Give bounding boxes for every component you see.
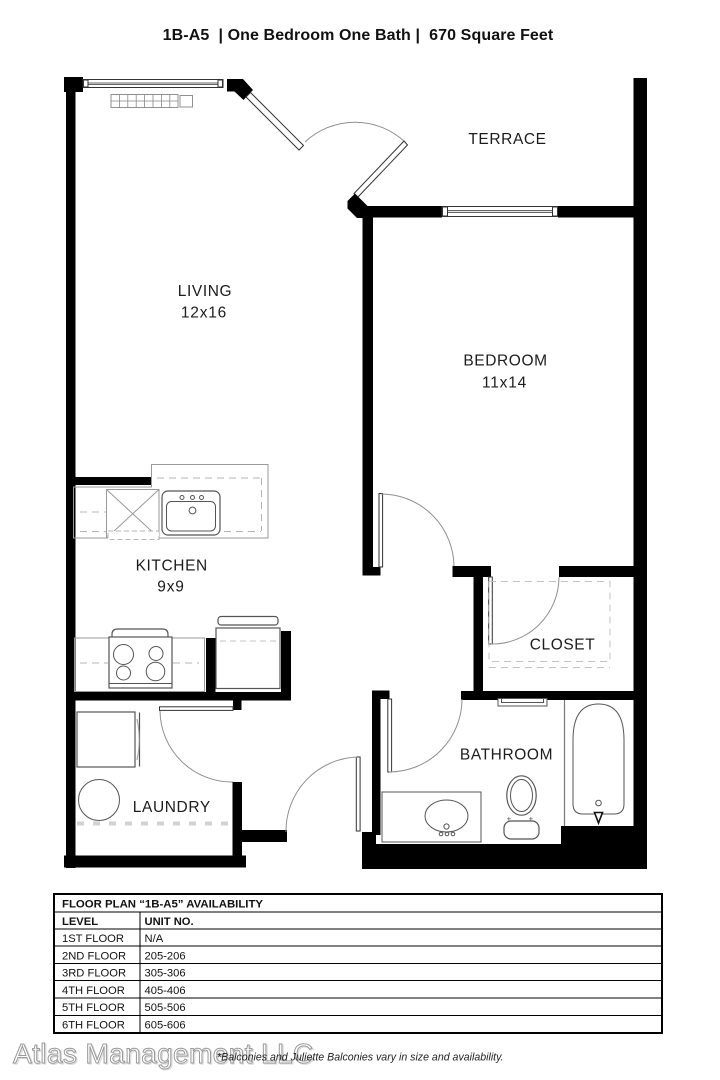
svg-text:305-306: 305-306: [145, 968, 186, 980]
svg-text:CLOSET: CLOSET: [530, 637, 596, 654]
svg-text:1B-A5 | One Bedroom One Bath: 1B-A5 | One Bedroom One Bath | 670 Squar…: [163, 27, 554, 44]
svg-text:9x9: 9x9: [157, 579, 184, 596]
svg-text:505-506: 505-506: [145, 1002, 186, 1014]
svg-text:LIVING: LIVING: [178, 283, 232, 300]
svg-text:2ND FLOOR: 2ND FLOOR: [62, 951, 126, 963]
svg-text:BEDROOM: BEDROOM: [463, 353, 547, 370]
svg-text:KITCHEN: KITCHEN: [136, 558, 208, 575]
svg-text:LEVEL: LEVEL: [62, 916, 98, 928]
svg-text:1ST FLOOR: 1ST FLOOR: [62, 933, 124, 945]
svg-text:TERRACE: TERRACE: [468, 131, 546, 148]
svg-text:BATHROOM: BATHROOM: [460, 747, 553, 764]
svg-text:12x16: 12x16: [181, 305, 227, 322]
svg-text:5TH FLOOR: 5TH FLOOR: [62, 1002, 125, 1014]
svg-text:LAUNDRY: LAUNDRY: [133, 799, 211, 816]
svg-text:4TH FLOOR: 4TH FLOOR: [62, 985, 125, 997]
svg-text:N/A: N/A: [145, 933, 164, 945]
svg-text:FLOOR PLAN “1B-A5” AVAILABILIT: FLOOR PLAN “1B-A5” AVAILABILITY: [62, 899, 263, 911]
svg-text:+: +: [529, 815, 534, 824]
svg-text:405-406: 405-406: [145, 985, 186, 997]
svg-text:3RD FLOOR: 3RD FLOOR: [62, 968, 126, 980]
svg-text:*Balconies and Juliette Balcon: *Balconies and Juliette Balconies vary i…: [217, 1052, 504, 1064]
svg-text:605-606: 605-606: [145, 1020, 186, 1032]
svg-text:UNIT NO.: UNIT NO.: [145, 916, 194, 928]
svg-text:+: +: [507, 815, 512, 824]
svg-text:11x14: 11x14: [482, 375, 527, 392]
svg-text:6TH FLOOR: 6TH FLOOR: [62, 1020, 125, 1032]
svg-text:205-206: 205-206: [145, 951, 186, 963]
